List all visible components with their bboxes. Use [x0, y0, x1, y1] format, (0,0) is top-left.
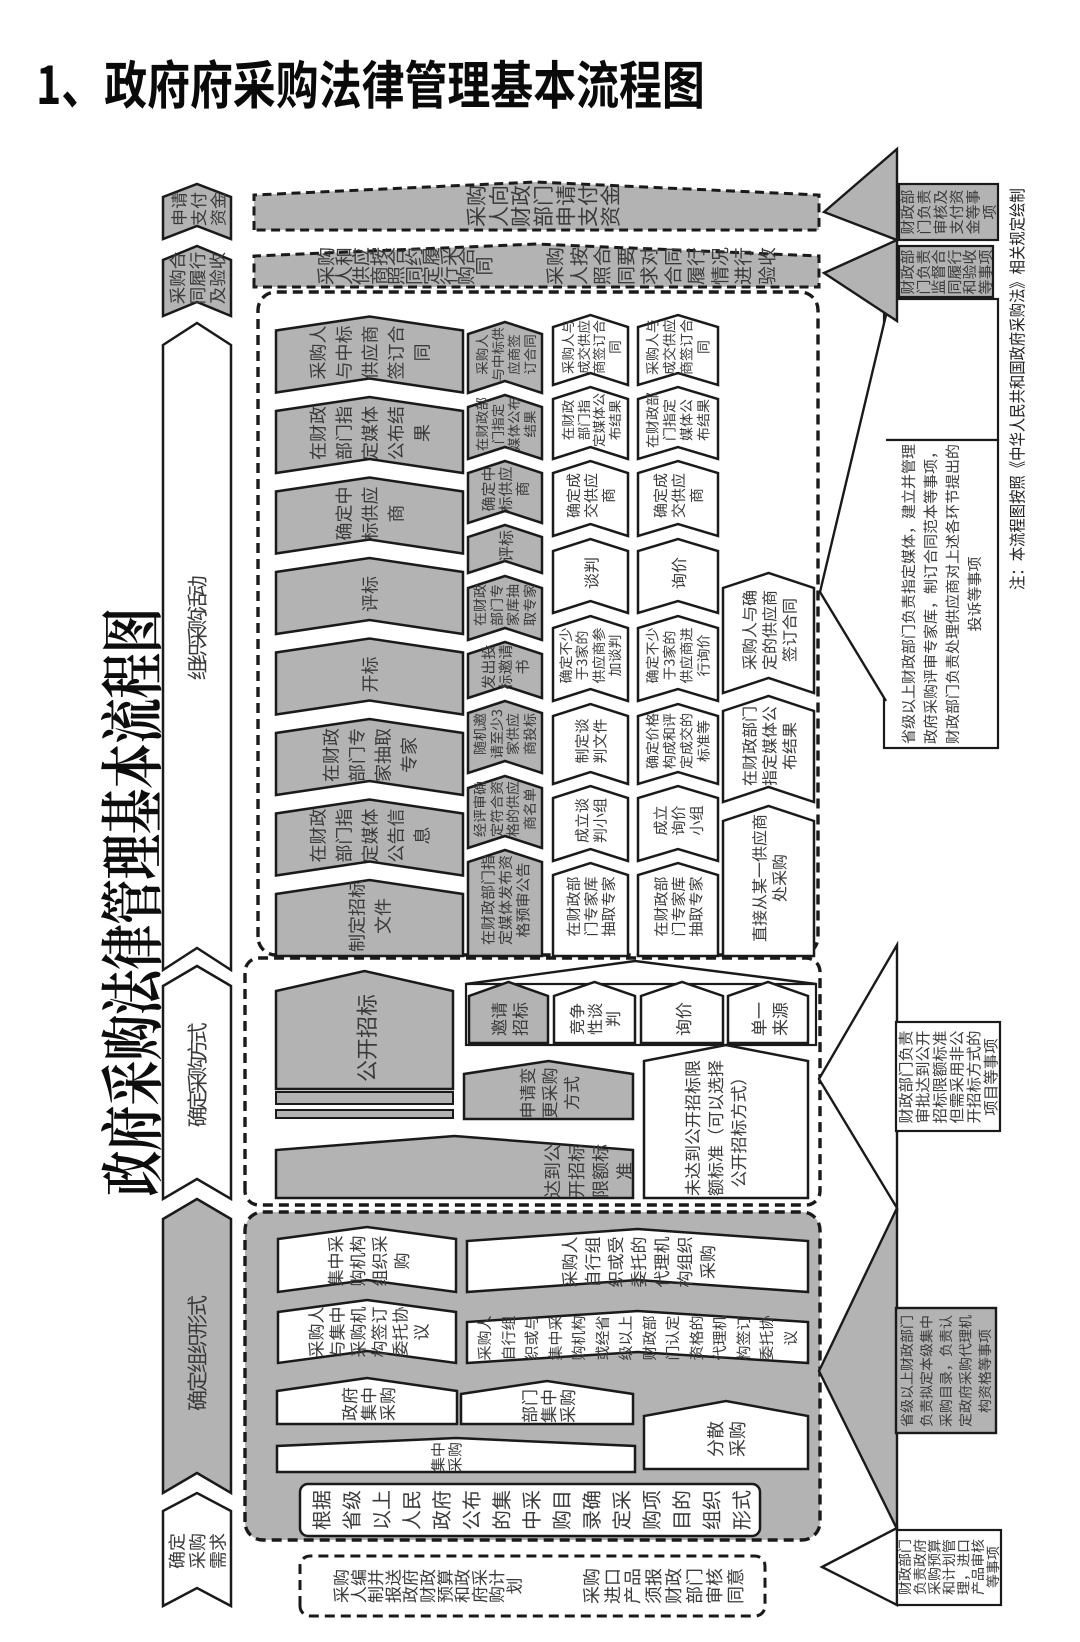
svg-text:谈判: 谈判: [579, 557, 603, 589]
svg-text:注：本流程图按照《中华人民共和国政府采购法》相关规定绘制: 注：本流程图按照《中华人民共和国政府采购法》相关规定绘制: [1004, 188, 1029, 590]
svg-text:评标: 评标: [357, 576, 383, 612]
svg-text:组织采购活动: 组织采购活动: [182, 576, 212, 680]
svg-text:省级以上财政部门负责拟定本级集中采购目录，负责认定政府采购代: 省级以上财政部门负责拟定本级集中采购目录，负责认定政府采购代理机构资格等事项: [897, 1315, 995, 1427]
svg-text:成立谈判小组: 成立谈判小组: [571, 798, 610, 843]
svg-text:财政部门负责审批达到公开招标限额标准但需采用非公开招标方式的: 财政部门负责审批达到公开招标限额标准但需采用非公开招标方式的项目等事项: [895, 1030, 1002, 1123]
svg-text:政府采购法律管理基本流程图: 政府采购法律管理基本流程图: [82, 608, 174, 1196]
svg-text:询价: 询价: [666, 557, 690, 589]
svg-text:确定组织形式: 确定组织形式: [182, 1295, 212, 1411]
svg-text:开标: 开标: [357, 657, 383, 693]
svg-text:单一来源: 单一来源: [745, 1002, 791, 1036]
svg-text:在财政部门指定媒体发布资格预审公告: 在财政部门指定媒体发布资格预审公告: [477, 855, 533, 945]
svg-text:公开招标: 公开招标: [350, 994, 382, 1082]
svg-text:在财政部门专家库抽取专家: 在财政部门专家库抽取专家: [563, 876, 619, 936]
svg-text:政府集中采购: 政府集中采购: [336, 1387, 399, 1421]
svg-text:采购合同履行及验收: 采购合同履行及验收: [165, 252, 230, 305]
svg-text:在财政部门指定媒体公布结果: 在财政部门指定媒体公布结果: [557, 393, 624, 447]
svg-text:根据省级以上人民政府公布的集中采购目录确定采购项目的组织形式: 根据省级以上人民政府公布的集中采购目录确定采购项目的组织形式: [306, 1490, 755, 1530]
svg-text:集中采购: 集中采购: [427, 1442, 465, 1472]
svg-text:采购人按照合同要求对合同履行情况进行验收: 采购人按照合同要求对合同履行情况进行验收: [541, 247, 780, 285]
svg-text:采购人与中标供应商签订合同: 采购人与中标供应商签订合同: [471, 328, 539, 382]
svg-text:在财政部门专家库抽取专家: 在财政部门专家库抽取专家: [470, 584, 540, 626]
svg-text:未达到公开招标限额标准（可以选择公开招标方式）: 未达到公开招标限额标准（可以选择公开招标方式）: [679, 1060, 750, 1196]
svg-text:财政部门负责监督合同履行和验收等事项: 财政部门负责监督合同履行和验收等事项: [897, 249, 996, 294]
svg-text:采购进口产品须报财政部门审核同意: 采购进口产品须报财政部门审核同意: [578, 1568, 748, 1604]
svg-text:分散采购: 分散采购: [702, 1421, 750, 1457]
svg-text:邀请招标: 邀请招标: [485, 1002, 531, 1036]
svg-text:财政部门负责政府采购预算和计划管理，进口产品审核等事项: 财政部门负责政府采购预算和计划管理，进口产品审核等事项: [895, 1539, 1003, 1595]
svg-text:确定不少于3家的供应商进行询价: 确定不少于3家的供应商进行询价: [643, 628, 714, 684]
svg-text:评标: 评标: [493, 530, 517, 562]
svg-text:制定谈判文件: 制定谈判文件: [571, 718, 610, 763]
svg-text:确定采购需求: 确定采购需求: [164, 1533, 231, 1569]
svg-text:采购人和供应商按照合同约定履行采购合同: 采购人和供应商按照合同约定履行采购合同: [312, 247, 497, 285]
svg-text:在财政部门专家库抽取专家: 在财政部门专家库抽取专家: [650, 876, 706, 936]
svg-text:采购人向财政部门申请支付资金: 采购人向财政部门申请支付资金: [461, 185, 625, 227]
svg-text:采购人编制并报送政府财政预算和政府采购计划: 采购人编制并报送政府财政预算和政府采购计划: [327, 1569, 525, 1603]
svg-text:在财政部门指定媒体公布结果: 在财政部门指定媒体公布结果: [643, 392, 714, 448]
svg-text:部门集中采购: 部门集中采购: [516, 1389, 579, 1423]
svg-text:采购人与确定的供应商签订合同: 采购人与确定的供应商签订合同: [737, 590, 801, 670]
svg-text:确定采购方式: 确定采购方式: [182, 1022, 212, 1127]
svg-text:采购人自行组织或受委托的代理机构组织采购: 采购人自行组织或受委托的代理机构组织采购: [556, 1237, 719, 1288]
svg-text:申请支付资金: 申请支付资金: [165, 192, 229, 226]
svg-text:成立询价小组: 成立询价小组: [650, 805, 707, 835]
svg-text:确定不少于3家的供应商参加谈判: 确定不少于3家的供应商参加谈判: [556, 628, 625, 684]
svg-text:经评审确定符合资格的供应商名单: 经评审确定符合资格的供应商名单: [470, 781, 540, 837]
svg-text:随机邀请至少3家供应商投标: 随机邀请至少3家供应商投标: [470, 709, 540, 759]
svg-text:确定价格构成和评定成交的标准等: 确定价格构成和评定成交的标准等: [643, 713, 714, 769]
svg-text:询价: 询价: [670, 1002, 695, 1036]
